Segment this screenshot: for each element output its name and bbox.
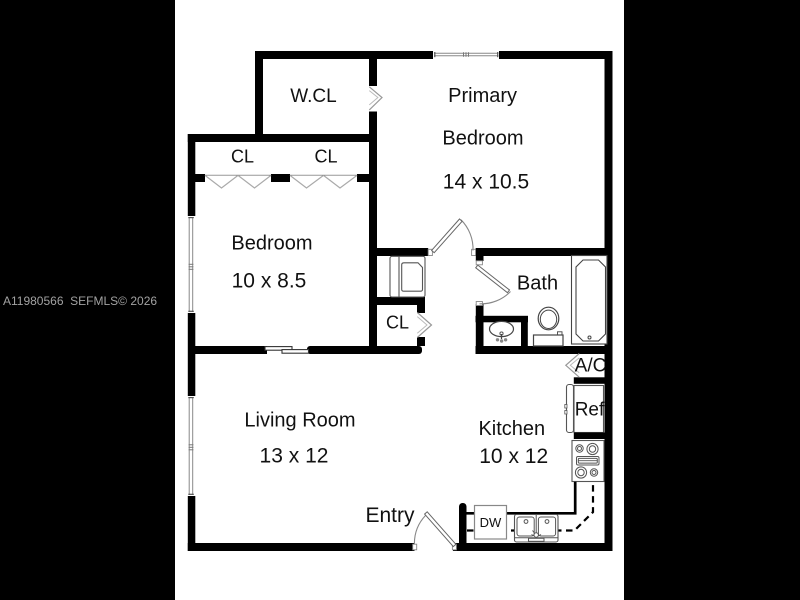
svg-text:Bedroom: Bedroom bbox=[442, 127, 523, 149]
svg-text:Entry: Entry bbox=[365, 504, 415, 527]
svg-text:CL: CL bbox=[314, 147, 337, 167]
svg-text:A/C: A/C bbox=[575, 355, 607, 376]
svg-text:10 x 8.5: 10 x 8.5 bbox=[232, 270, 307, 293]
svg-text:Bath: Bath bbox=[517, 273, 558, 295]
svg-text:Kitchen: Kitchen bbox=[478, 418, 545, 440]
svg-text:14 x 10.5: 14 x 10.5 bbox=[443, 171, 529, 194]
svg-text:Bedroom: Bedroom bbox=[231, 233, 312, 255]
svg-text:W.CL: W.CL bbox=[290, 86, 336, 107]
svg-text:DW: DW bbox=[480, 515, 502, 530]
svg-text:13 x 12: 13 x 12 bbox=[260, 444, 329, 467]
svg-text:Living Room: Living Room bbox=[244, 409, 355, 431]
svg-text:CL: CL bbox=[231, 147, 254, 167]
svg-text:10 x 12: 10 x 12 bbox=[479, 445, 548, 468]
svg-text:Primary: Primary bbox=[448, 85, 517, 107]
svg-text:Ref: Ref bbox=[575, 399, 605, 420]
svg-text:CL: CL bbox=[386, 312, 409, 332]
svg-text:A11980566 SEFMLS© 2026: A11980566 SEFMLS© 2026 bbox=[3, 294, 157, 308]
